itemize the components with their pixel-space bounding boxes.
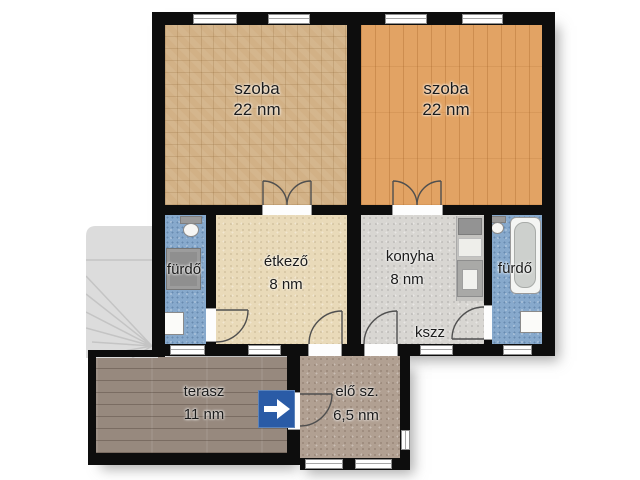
wall-middle bbox=[165, 205, 542, 215]
window bbox=[462, 14, 503, 24]
window bbox=[248, 345, 281, 355]
window bbox=[268, 14, 310, 24]
door-opening-kszz-furdo bbox=[484, 305, 492, 340]
wall-left bbox=[152, 25, 165, 356]
wall-etkezo-konyha bbox=[347, 215, 361, 344]
room-label-furdo-right: fürdő bbox=[498, 261, 532, 278]
staircase bbox=[86, 226, 158, 358]
wall-terasz-bottom bbox=[88, 453, 295, 465]
room-area-etkezo: 8 nm bbox=[269, 277, 302, 294]
toilet-bowl-icon bbox=[183, 223, 199, 237]
door-opening-etkezo-elo bbox=[308, 344, 342, 356]
kitchen-worktop bbox=[458, 238, 482, 257]
wall-elo-right bbox=[400, 356, 410, 470]
wall-terasz-top bbox=[88, 350, 165, 357]
room-label-furdo-left: fürdő bbox=[167, 262, 201, 279]
room-area-terasz: 11 nm bbox=[184, 407, 225, 424]
window bbox=[305, 459, 343, 469]
toilet-bowl-icon bbox=[491, 222, 504, 234]
window bbox=[420, 345, 453, 355]
wall-right bbox=[542, 25, 555, 356]
bathtub-basin bbox=[514, 222, 536, 288]
room-area-szoba-left: 22 nm bbox=[233, 101, 280, 120]
window bbox=[193, 14, 237, 24]
entrance-arrow-icon bbox=[258, 390, 295, 428]
window bbox=[401, 430, 410, 450]
sink-icon bbox=[520, 311, 543, 333]
room-area-eloszoba: 6,5 nm bbox=[333, 408, 379, 425]
door-opening-szoba-konyha bbox=[392, 205, 443, 215]
room-label-kszz: kszz bbox=[415, 325, 445, 342]
kitchen-sink-icon bbox=[458, 218, 482, 235]
window bbox=[355, 459, 392, 469]
door-opening-etkezo-furdo bbox=[206, 308, 216, 342]
room-label-szoba-right: szoba bbox=[423, 80, 468, 99]
room-label-szoba-left: szoba bbox=[234, 80, 279, 99]
wall-szoba-divider bbox=[347, 25, 361, 205]
wall-terasz-left bbox=[88, 350, 96, 465]
door-opening-konyha-elo bbox=[364, 344, 398, 356]
window bbox=[170, 345, 205, 355]
room-area-szoba-right: 22 nm bbox=[422, 101, 469, 120]
oven-icon bbox=[462, 269, 478, 290]
door-opening-szoba-etkezo bbox=[262, 205, 312, 215]
room-label-eloszoba: elő sz. bbox=[335, 384, 378, 401]
window bbox=[503, 345, 532, 355]
floorplan: szoba 22 nm szoba 22 nm fürdő étkező 8 n… bbox=[0, 0, 640, 480]
window bbox=[385, 14, 427, 24]
room-label-konyha: konyha bbox=[386, 249, 434, 266]
room-label-etkezo: étkező bbox=[264, 254, 308, 271]
room-label-terasz: terasz bbox=[184, 384, 225, 401]
room-area-konyha: 8 nm bbox=[390, 272, 423, 289]
wall-bottom-main bbox=[152, 344, 555, 356]
